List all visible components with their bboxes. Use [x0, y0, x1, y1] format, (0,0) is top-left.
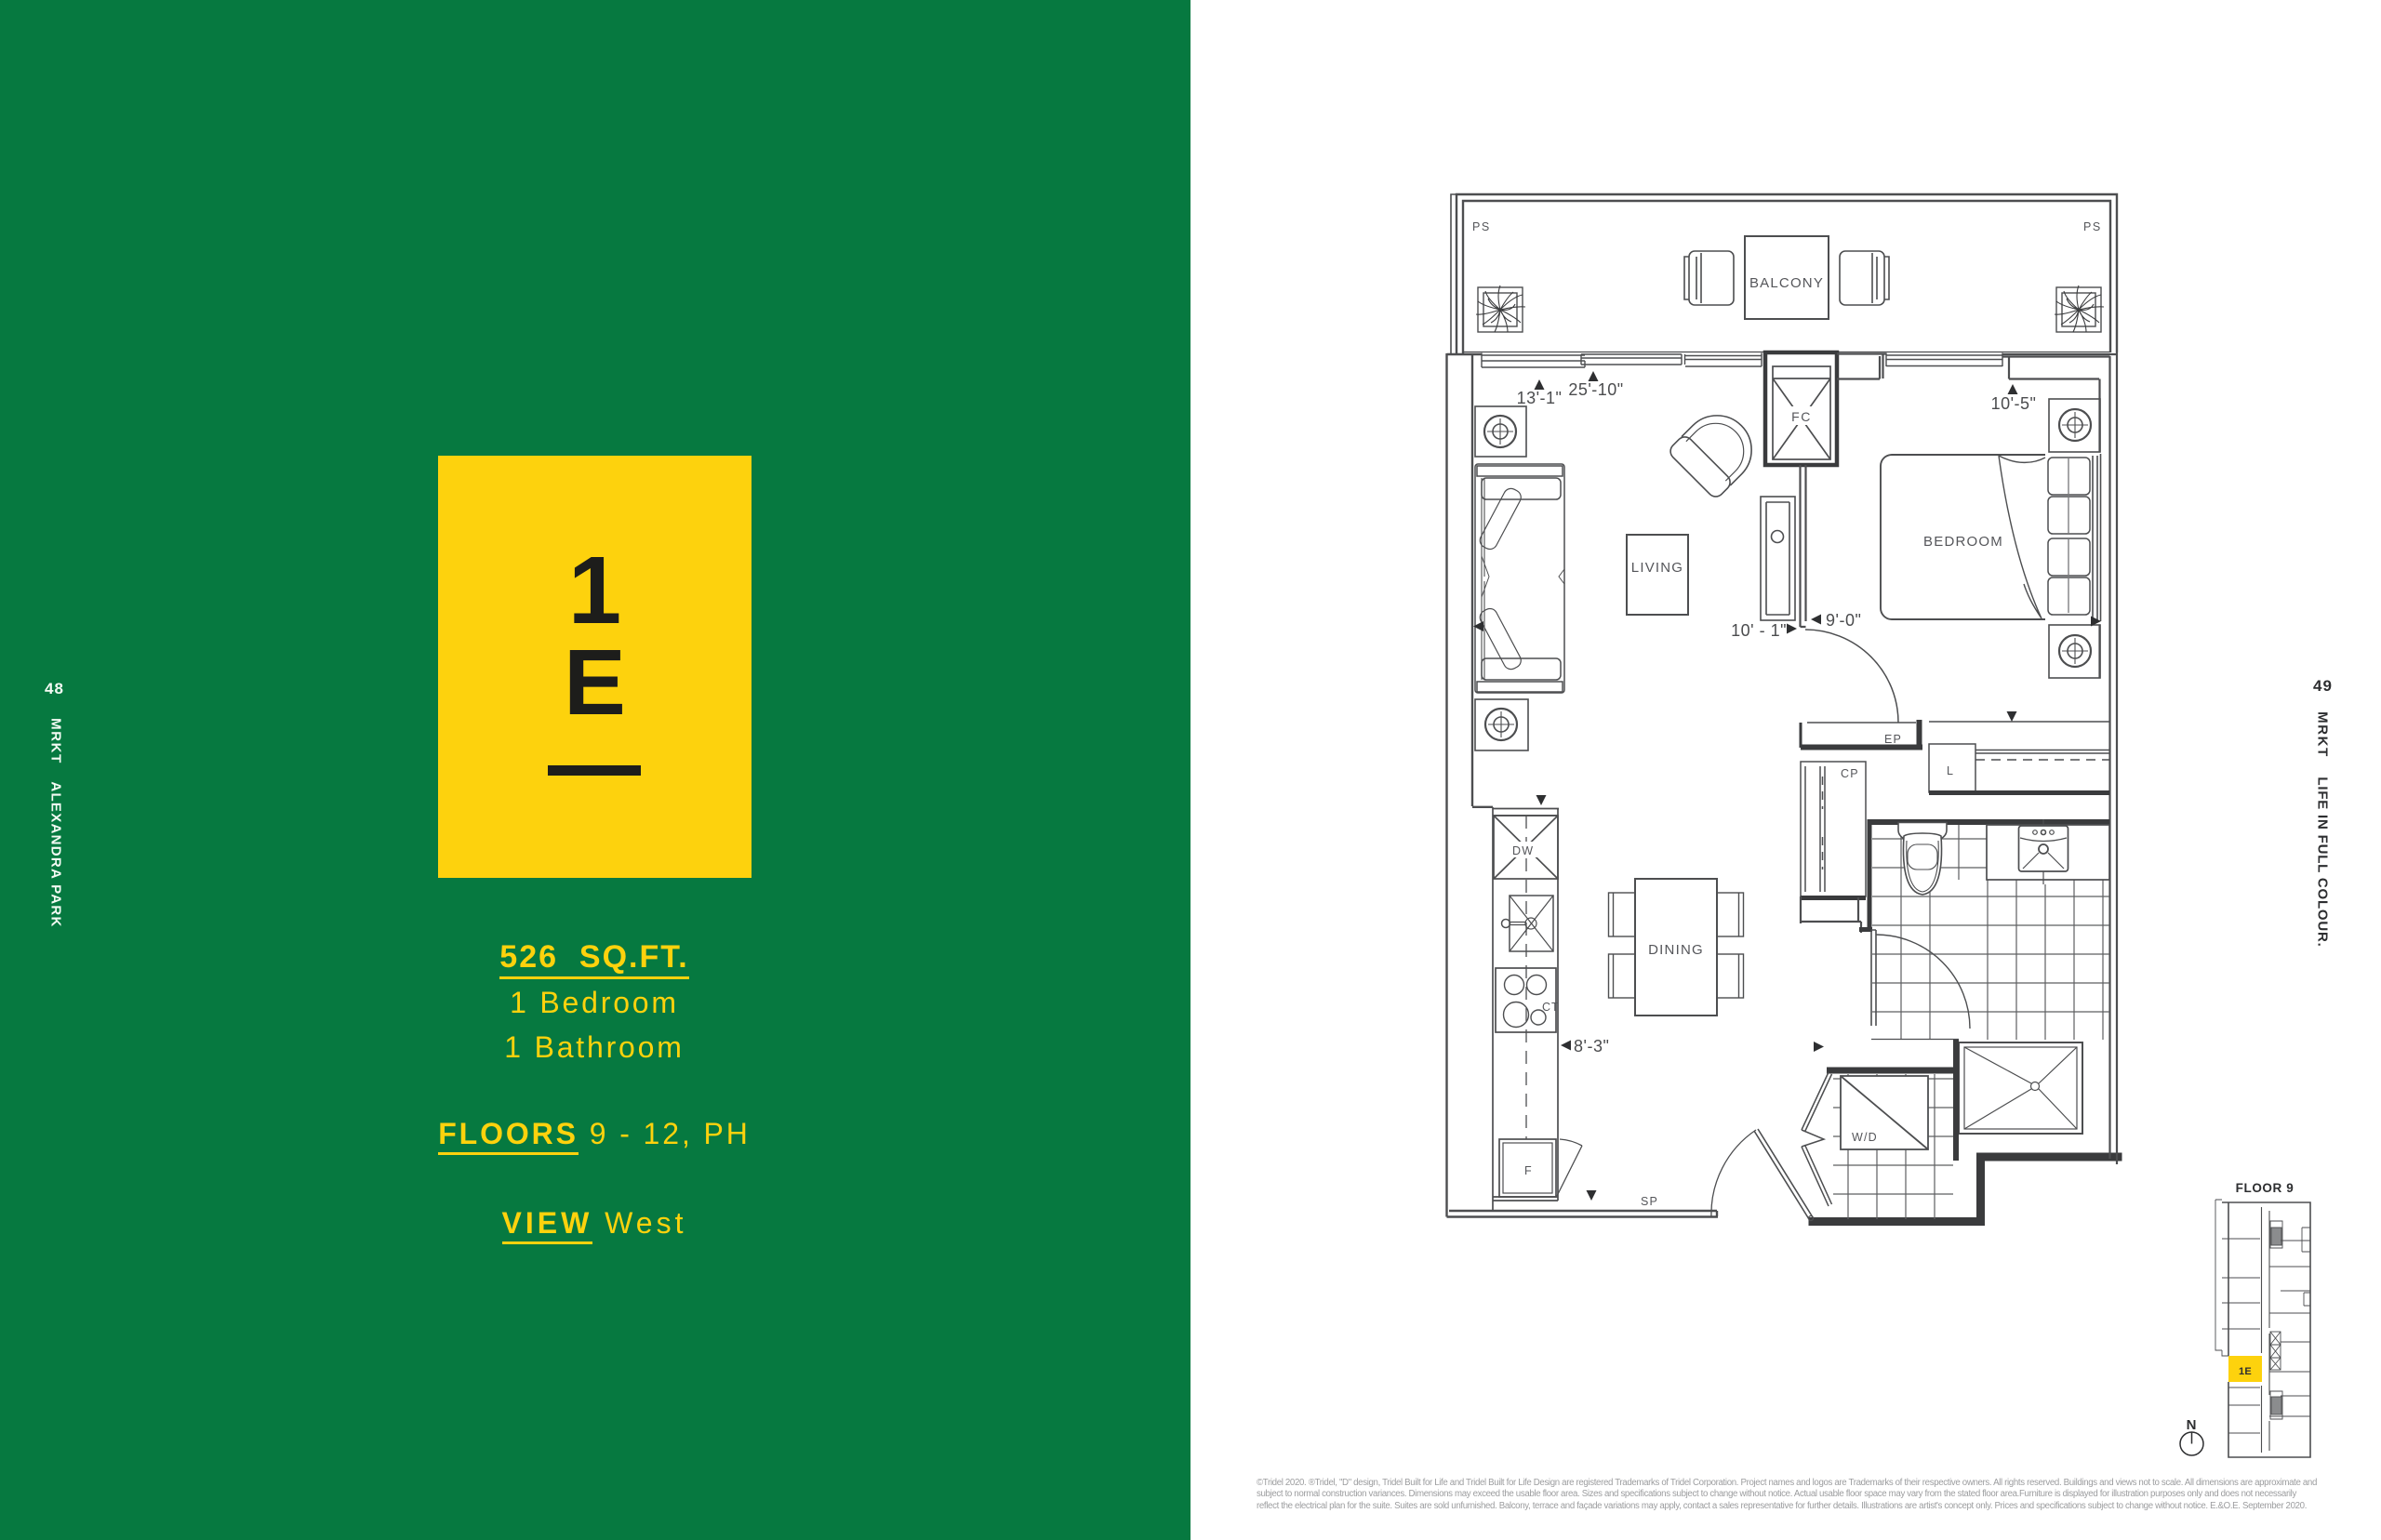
- svg-text:PS: PS: [2083, 220, 2102, 233]
- svg-text:LIVING: LIVING: [1631, 560, 1683, 576]
- svg-text:DINING: DINING: [1648, 942, 1704, 958]
- svg-text:13'-1": 13'-1": [1517, 389, 1563, 407]
- svg-text:F: F: [1524, 1164, 1533, 1177]
- svg-text:10' - 1": 10' - 1": [1731, 621, 1787, 640]
- svg-text:10'-5": 10'-5": [1991, 394, 2037, 413]
- svg-text:N: N: [2187, 1417, 2197, 1433]
- svg-text:BEDROOM: BEDROOM: [1923, 534, 2003, 550]
- svg-text:25'-10": 25'-10": [1568, 380, 1623, 399]
- svg-text:FC: FC: [1791, 409, 1812, 424]
- svg-text:8'-3": 8'-3": [1574, 1037, 1609, 1055]
- svg-text:CP: CP: [1841, 767, 1859, 780]
- svg-text:FLOOR 9: FLOOR 9: [2236, 1181, 2295, 1195]
- svg-text:EP: EP: [1884, 733, 1902, 746]
- svg-text:9'-0": 9'-0": [1826, 611, 1861, 630]
- svg-text:1E: 1E: [2239, 1366, 2252, 1377]
- svg-text:PS: PS: [1472, 220, 1491, 233]
- svg-text:SP: SP: [1641, 1195, 1658, 1208]
- svg-text:L: L: [1947, 764, 1954, 777]
- svg-text:BALCONY: BALCONY: [1749, 275, 1824, 291]
- svg-text:CT: CT: [1542, 1001, 1560, 1014]
- svg-text:W/D: W/D: [1852, 1131, 1878, 1144]
- svg-text:DW: DW: [1512, 844, 1534, 857]
